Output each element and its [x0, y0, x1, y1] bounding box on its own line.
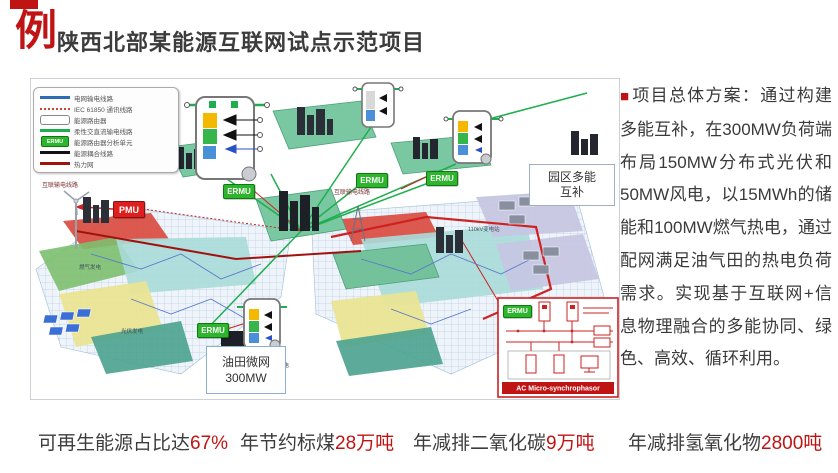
park-multi-energy-label: 园区多能 互补 — [529, 164, 615, 206]
pmu-badge: PMU — [113, 201, 145, 218]
legend-item: 能源路由器 — [40, 114, 174, 125]
ermu-badge: ERMU — [223, 184, 255, 199]
energy-network-diagram: AC Micro-synchrophasor 110kV变电站 燃气发电 光伏发… — [30, 78, 620, 400]
ermu-badge: ERMU — [503, 305, 532, 318]
legend-item: IEC 61850 通讯线路 — [40, 103, 174, 114]
ermu-badge: ERMU — [426, 171, 458, 186]
svg-text:110kV变电站: 110kV变电站 — [468, 225, 500, 233]
legend-item: ERMU能源路由器分析单元 — [40, 136, 174, 147]
legend-item: 热力网 — [40, 158, 174, 169]
red-dotted-line-swatch — [40, 108, 70, 110]
stat-coal-saved: 年节约标煤28万吨 — [240, 428, 394, 455]
interconnect-line-label: 互联输电线路 — [334, 187, 370, 196]
legend: 电网输电线路 IEC 61850 通讯线路 能源路由器 柔性交直流输电线路 ER… — [33, 87, 179, 173]
interconnect-line-label: 互联输电线路 — [42, 180, 78, 189]
example-badge: 例 — [15, 8, 57, 56]
ermu-badge-swatch: ERMU — [40, 136, 70, 147]
stat-renewable-share: 可再生能源占比达67% — [38, 428, 228, 455]
green-line-swatch — [40, 129, 70, 132]
black-line-swatch — [40, 151, 70, 154]
legend-item: 柔性交直流输电线路 — [40, 125, 174, 136]
legend-item: 电网输电线路 — [40, 92, 174, 103]
ermu-badge: ERMU — [197, 323, 229, 338]
legend-item: 能源耦合线路 — [40, 147, 174, 158]
ac-micro-label: AC Micro-synchrophasor — [516, 386, 600, 393]
oilfield-microgrid-label: 油田微网 300MW — [206, 346, 286, 394]
red-square-bullet: ■ — [620, 88, 630, 105]
page-title: 陕西北部某能源互联网试点示范项目 — [57, 25, 425, 57]
svg-text:燃气发电: 燃气发电 — [79, 263, 102, 271]
stat-co2-reduced: 年减排二氧化碳9万吨 — [413, 428, 595, 455]
stat-nox-reduced: 年减排氢氧化物2800吨 — [628, 428, 822, 455]
dark-red-line-swatch — [40, 162, 70, 165]
ermu-badge: ERMU — [356, 173, 388, 188]
description-text: 项目总体方案：通过构建多能互补，在300MW负荷端布局150MW分布式光伏和50… — [620, 86, 832, 368]
stats-row: 可再生能源占比达67% 年节约标煤28万吨 年减排二氧化碳9万吨 年减排氢氧化物… — [0, 426, 838, 460]
svg-text:光伏发电: 光伏发电 — [121, 327, 144, 335]
router-box-swatch — [40, 115, 70, 125]
blue-line-swatch — [40, 96, 70, 99]
project-description: ■项目总体方案：通过构建多能互补，在300MW负荷端布局150MW分布式光伏和5… — [620, 80, 832, 416]
